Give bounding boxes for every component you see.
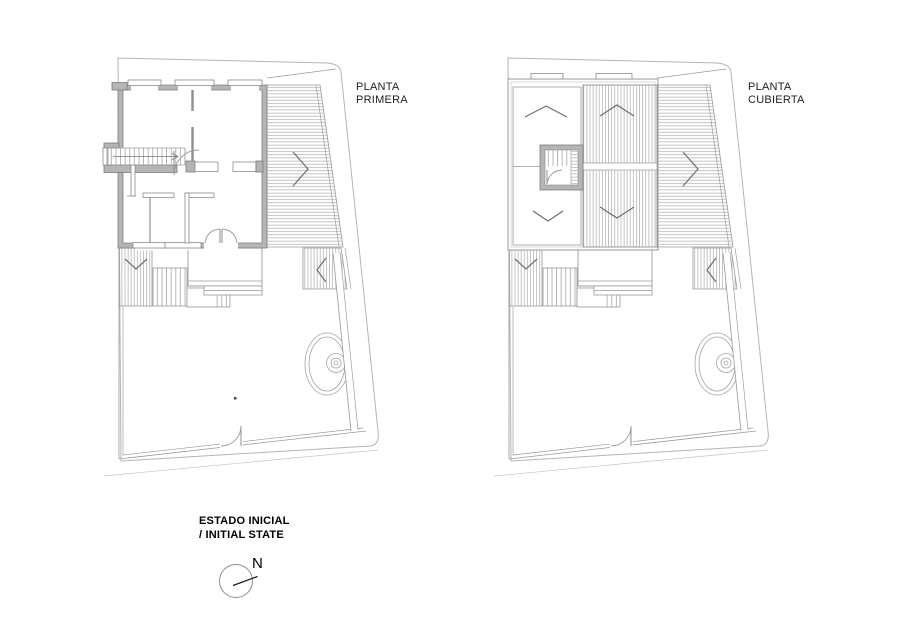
caption-line: ESTADO INICIAL	[199, 515, 290, 529]
roof-ridge	[583, 163, 657, 170]
plan-title-primera: PLANTA PRIMERA	[356, 81, 408, 107]
architectural-drawing-sheet: { "plans": { "left": { "title_line1": "P…	[0, 0, 900, 637]
first-floor-building	[103, 80, 267, 400]
sheet-caption: ESTADO INICIAL / INITIAL STATE	[199, 515, 290, 542]
plan-title-line: PLANTA	[356, 81, 408, 94]
window	[165, 243, 201, 251]
roof-edge-bar	[531, 74, 563, 80]
caption-line: / INITIAL STATE	[199, 529, 290, 543]
plan-title-cubierta: PLANTA CUBIERTA	[748, 81, 805, 107]
plan-title-line: CUBIERTA	[748, 94, 805, 107]
window	[133, 243, 165, 251]
interior-stair	[103, 143, 185, 173]
compass-needle	[233, 577, 258, 586]
plan-title-line: PLANTA	[748, 81, 805, 94]
planta-cubierta-drawing	[494, 58, 768, 476]
roof-building	[508, 74, 658, 251]
survey-dot	[234, 397, 237, 400]
roof-edge-bar	[596, 74, 632, 80]
window	[128, 80, 161, 92]
partitions	[127, 165, 214, 243]
window	[175, 80, 214, 92]
planta-primera-drawing	[103, 58, 378, 476]
entry-double-door	[204, 229, 238, 252]
stair-penthouse	[540, 145, 583, 190]
window	[228, 80, 262, 92]
roof-panel-middle	[583, 85, 657, 247]
north-label: N	[252, 556, 263, 571]
plan-title-line: PRIMERA	[356, 94, 408, 107]
compass-circle	[220, 565, 253, 598]
